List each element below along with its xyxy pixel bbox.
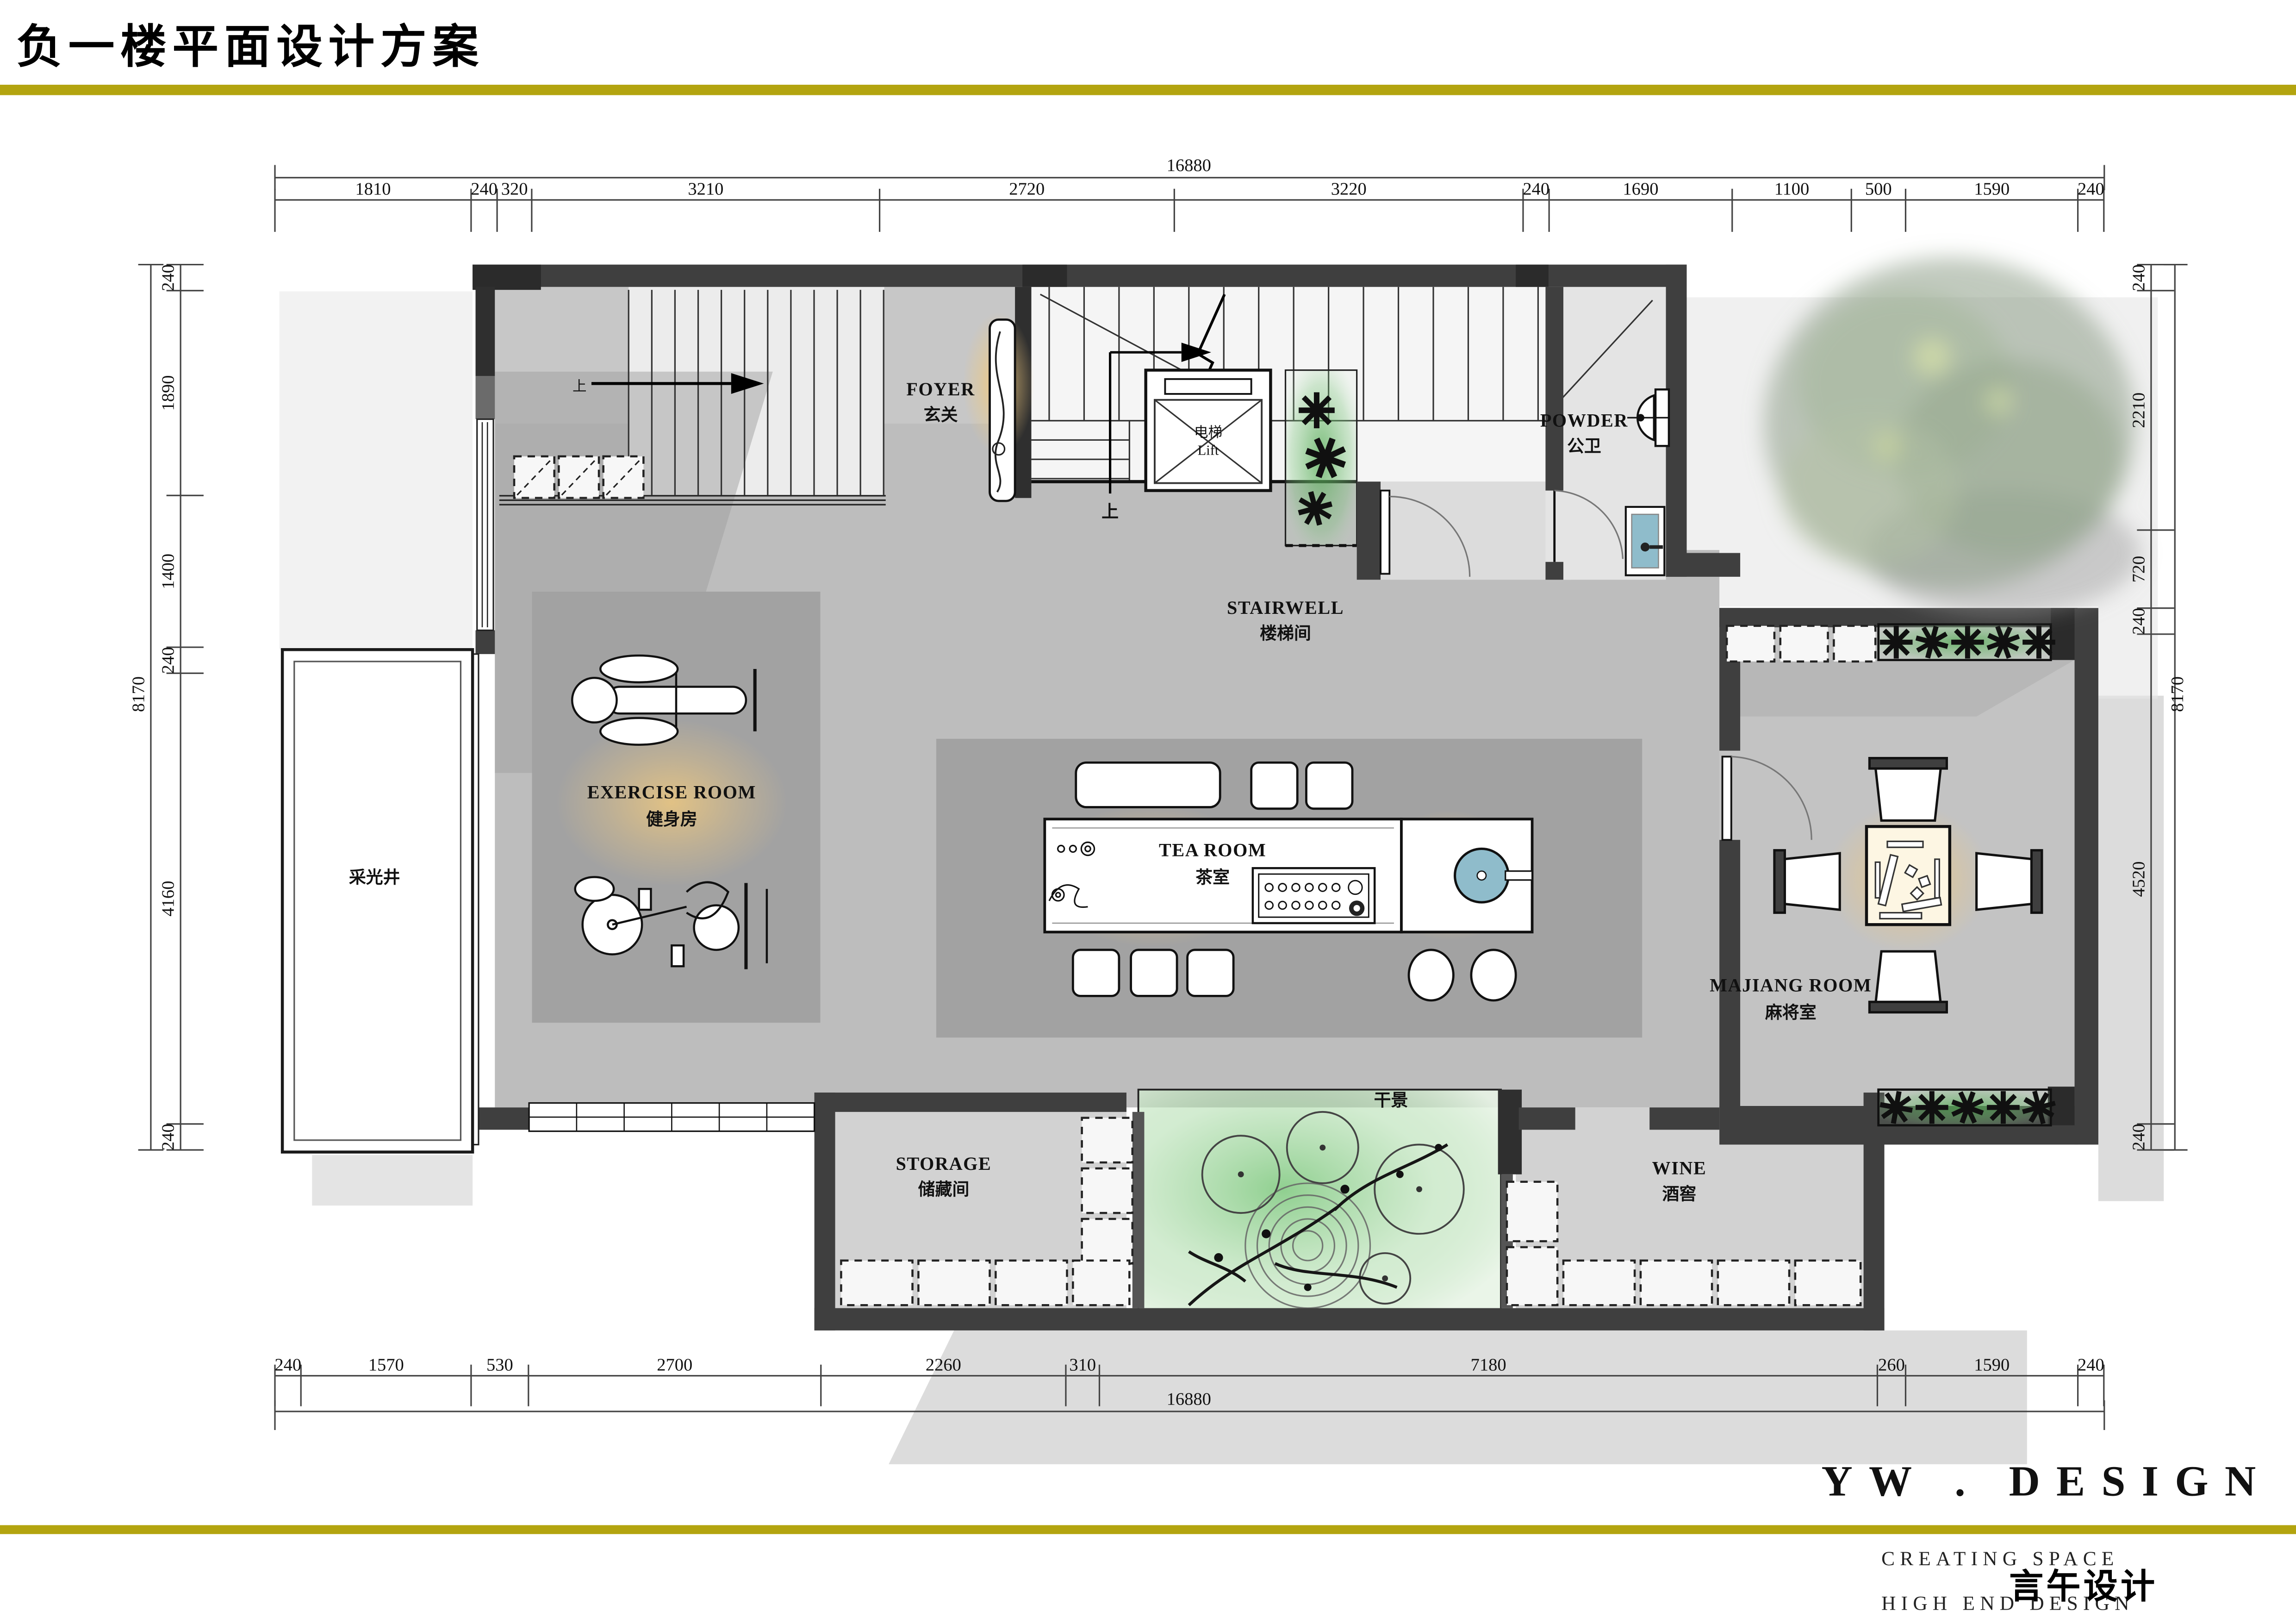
accent-bar-bottom [0, 1525, 2296, 1534]
dim-top-7: 1690 [1623, 180, 1658, 199]
dim-top-1: 240 [471, 180, 498, 199]
dim-top-overall: 16880 [1167, 156, 1211, 175]
light-well-label: 采光井 [349, 868, 400, 887]
dim-bottom-7: 260 [1878, 1355, 1905, 1375]
dim-top-8: 1100 [1774, 180, 1810, 199]
storage-label-zh: 储藏间 [918, 1180, 970, 1199]
dim-right-3: 240 [2129, 608, 2148, 635]
dim-left-5: 240 [159, 1124, 178, 1150]
dim-right-4: 4520 [2129, 861, 2148, 897]
storage-label-en: STORAGE [896, 1153, 992, 1174]
tea-label-en: TEA ROOM [1159, 840, 1266, 861]
dim-right-1: 2210 [2129, 393, 2148, 428]
exercise-label-en: EXERCISE ROOM [587, 781, 756, 802]
dim-top-4: 2720 [1009, 180, 1045, 199]
tea-label-zh: 茶室 [1195, 868, 1230, 887]
dim-bottom-0: 240 [274, 1355, 301, 1375]
stair-up-label: 上 [1101, 502, 1119, 521]
floor-plan-sheet: 负一楼平面设计方案 [0, 0, 2296, 1624]
wine-label-en: WINE [1652, 1158, 1706, 1179]
dim-left-2: 1400 [159, 554, 178, 589]
dry-landscape-garden [1139, 1090, 1501, 1313]
dim-top-11: 240 [2078, 180, 2104, 199]
lift-label-zh: 电梯 [1194, 425, 1222, 440]
powder-label-en: POWDER [1540, 410, 1628, 431]
dim-right-2: 720 [2129, 556, 2148, 583]
stairwell-label-en: STAIRWELL [1227, 597, 1344, 618]
dim-left-1: 1890 [159, 375, 178, 411]
dim-bottom-2: 530 [486, 1355, 513, 1375]
dim-right-5: 240 [2129, 1124, 2148, 1150]
dim-bottom-6: 7180 [1471, 1355, 1506, 1375]
light-well: 采光井 [282, 650, 473, 1152]
foyer-label-zh: 玄关 [924, 406, 958, 425]
lift-shaft: 电梯 Lift [1146, 370, 1271, 491]
dim-left-0: 240 [159, 264, 178, 291]
dry-landscape-label: 干景 [1374, 1091, 1408, 1110]
dim-bottom-4: 2260 [926, 1355, 961, 1375]
dim-bottom-5: 310 [1069, 1355, 1096, 1375]
lift-label-en: Lift [1198, 443, 1219, 458]
powder-sink [1626, 507, 1664, 575]
dim-top-3: 3210 [688, 180, 723, 199]
dim-bottom-overall: 16880 [1167, 1389, 1211, 1409]
dim-top-9: 500 [1865, 180, 1892, 199]
dim-left-overall: 8170 [129, 676, 148, 712]
foyer-label-en: FOYER [906, 379, 975, 400]
stair-up-label-2: 上 [572, 378, 587, 394]
dim-top-0: 1810 [355, 180, 391, 199]
stair-plant-panel [1286, 370, 1357, 546]
brand-cn-name: 言午设计 [2009, 1558, 2158, 1608]
majiang-label-en: MAJIANG ROOM [1710, 975, 1872, 996]
dim-bottom-8: 1590 [1974, 1355, 2010, 1375]
dim-bottom-9: 240 [2078, 1355, 2104, 1375]
exercise-label-zh: 健身房 [646, 810, 697, 829]
stairwell-label-zh: 楼梯间 [1260, 624, 1311, 643]
dim-bottom-3: 2700 [657, 1355, 692, 1375]
south-wall-window [529, 1103, 815, 1131]
dim-bottom-1: 1570 [368, 1355, 404, 1375]
dim-right-0: 240 [2129, 264, 2148, 291]
dim-left-4: 4160 [159, 881, 178, 917]
dim-left-3: 240 [159, 647, 178, 674]
dim-top-2: 320 [501, 180, 528, 199]
brand-logo: YW . DESIGN [1821, 1458, 2272, 1507]
dim-top-6: 240 [1523, 180, 1549, 199]
majiang-label-zh: 麻将室 [1765, 1003, 1817, 1022]
tea-tray [1253, 868, 1375, 923]
dim-right-overall: 8170 [2168, 676, 2187, 712]
wine-label-zh: 酒窖 [1662, 1184, 1697, 1203]
dim-top-5: 3220 [1331, 180, 1367, 199]
dim-top-10: 1590 [1974, 180, 2010, 199]
floor-plan-drawing: 上 [0, 0, 2296, 1624]
left-wall-window [477, 419, 493, 631]
powder-label-zh: 公卫 [1567, 437, 1601, 456]
